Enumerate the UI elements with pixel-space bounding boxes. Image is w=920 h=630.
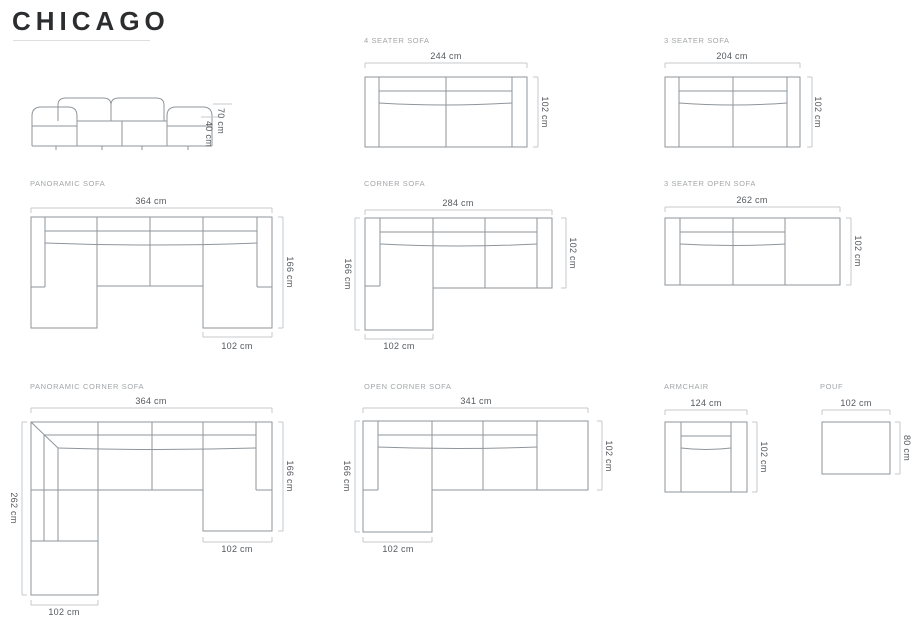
dim-pouf-width: 102 cm [840,398,871,408]
dim-four-seater-depth: 102 cm [540,96,550,127]
armchair-diagram [665,410,757,492]
dim-panoramic-corner-height-left: 262 cm [9,492,19,523]
dim-three-seater-depth: 102 cm [813,96,823,127]
pouf-diagram [822,410,900,474]
dim-armchair-width: 124 cm [690,398,721,408]
corner-diagram [355,210,566,339]
panoramic-corner-diagram [22,408,283,605]
three-seater-open-diagram [665,207,851,285]
section-label-pouf: POUF [820,382,843,391]
three-seater-diagram [665,63,812,147]
dim-three-seater-width: 204 cm [716,51,747,61]
section-label-panoramic-corner: PANORAMIC CORNER SOFA [30,382,144,391]
panoramic-diagram [31,208,283,337]
dim-corner-depth-body: 102 cm [568,237,578,268]
section-label-three-seater-open: 3 SEATER OPEN SOFA [664,179,756,188]
front-view-sofa-drawing [32,98,232,150]
open-corner-diagram [355,408,602,542]
four-seater-diagram [365,63,538,147]
dim-panoramic-chaise: 102 cm [221,341,252,351]
dim-three-seater-open-depth: 102 cm [853,235,863,266]
section-label-corner: CORNER SOFA [364,179,425,188]
dim-panoramic-depth: 166 cm [285,256,295,287]
dim-open-corner-width: 341 cm [460,396,491,406]
dim-armchair-depth: 102 cm [759,441,769,472]
dim-corner-chaise: 102 cm [383,341,414,351]
dim-corner-width: 284 cm [442,198,473,208]
dim-three-seater-open-width: 262 cm [736,195,767,205]
spec-sheet: CHICAGO [0,0,920,630]
diagram-canvas [0,0,920,630]
section-label-three-seater: 3 SEATER SOFA [664,36,730,45]
dim-panoramic-corner-height-right: 166 cm [285,460,295,491]
dim-open-corner-chaise: 102 cm [382,544,413,554]
dim-front-seat-height: 40 cm [204,121,214,147]
dim-panoramic-corner-chaise-right: 102 cm [221,544,252,554]
section-label-open-corner: OPEN CORNER SOFA [364,382,452,391]
dim-open-corner-depth-body: 102 cm [604,440,614,471]
dim-panoramic-corner-width: 364 cm [135,396,166,406]
section-label-panoramic: PANORAMIC SOFA [30,179,105,188]
dim-pouf-depth: 80 cm [902,435,912,461]
dim-open-corner-depth-total: 166 cm [342,460,352,491]
dim-panoramic-width: 364 cm [135,196,166,206]
dim-panoramic-corner-chaise-bottom: 102 cm [48,607,79,617]
dim-front-total-height: 70 cm [216,108,226,134]
dim-corner-depth-total: 166 cm [343,258,353,289]
section-label-four-seater: 4 SEATER SOFA [364,36,430,45]
section-label-armchair: ARMCHAIR [664,382,709,391]
dim-four-seater-width: 244 cm [430,51,461,61]
